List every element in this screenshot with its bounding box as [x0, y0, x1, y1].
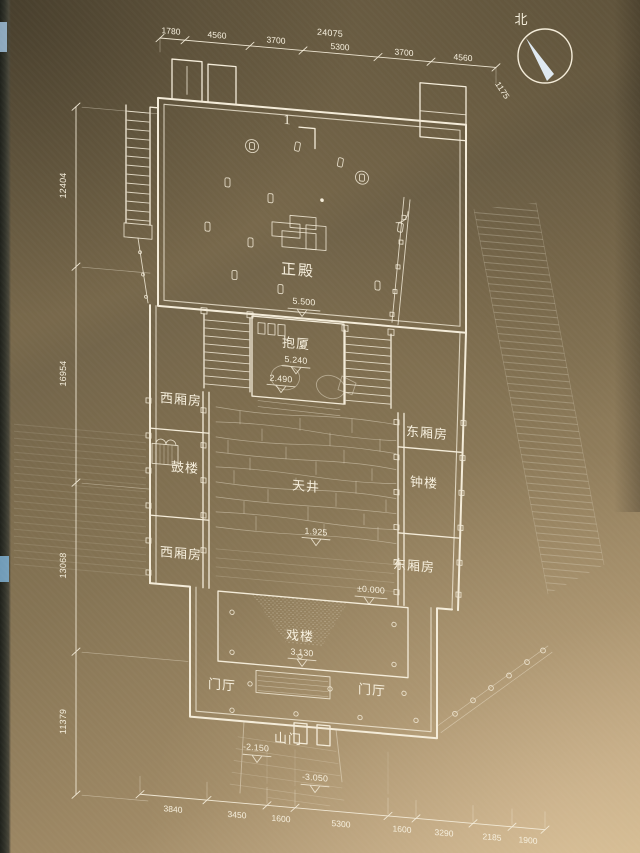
- mountain-gate: 山门 -2.150 -3.050: [230, 618, 552, 825]
- dim-left-2: 16954: [58, 360, 68, 387]
- room-label-entry-hall-west: 门厅: [208, 676, 236, 693]
- north-label: 北: [514, 12, 527, 27]
- dim-top-overall: 24075: [317, 27, 343, 39]
- level-marker-courtyard: 1.925: [302, 525, 330, 546]
- dim-top-seg5: 3700: [395, 47, 414, 59]
- dim-bottom-5: 1600: [393, 823, 412, 835]
- dim-top-seg3: 3700: [267, 34, 286, 46]
- interior-partition: [390, 196, 410, 326]
- room-label-mountain-gate: 山门: [274, 730, 302, 747]
- dim-bottom-7: 2185: [483, 831, 502, 843]
- dim-bottom-6: 3290: [435, 827, 454, 839]
- room-label-main-hall: 正殿: [281, 261, 315, 281]
- slope-hatch-east: [474, 197, 604, 598]
- section-marker: 1: [283, 113, 315, 149]
- dim-top-seg6: 4560: [454, 52, 473, 64]
- level-courtyard: 1.925: [305, 526, 328, 538]
- room-label-west-wing-lower: 西厢房: [160, 544, 202, 563]
- dim-bottom-4: 5300: [332, 818, 351, 830]
- room-label-west-wing-upper: 西厢房: [160, 390, 202, 409]
- level-marker-main-hall: 5.500: [288, 295, 320, 318]
- dim-top-right-end: 1175: [493, 80, 512, 101]
- plan-linework: 1780 4560 3700 24075 5300 3700 4560 1175…: [14, 0, 604, 852]
- stair-west: [201, 308, 253, 393]
- courtyard-paving: [216, 407, 396, 544]
- floorplan-drawing: 1780 4560 3700 24075 5300 3700 4560 1175…: [0, 0, 640, 853]
- compass-needle-icon: [526, 38, 554, 81]
- stair-east: [342, 325, 394, 409]
- room-label-east-wing-upper: 东厢房: [406, 424, 448, 443]
- dim-left-4: 11379: [58, 708, 68, 734]
- central-steps: [256, 670, 330, 698]
- level-marker-baoxia-upper: 5.240: [282, 354, 310, 375]
- dim-left-1: 12404: [58, 172, 68, 199]
- level-gate-lower: -3.050: [302, 771, 328, 783]
- room-label-stage: 戏楼: [286, 627, 314, 644]
- slope-hatch-west: [14, 421, 146, 581]
- room-label-bell-tower: 钟楼: [410, 474, 438, 491]
- room-label-drum-tower: 鼓楼: [171, 459, 199, 476]
- dim-bottom-8: 1900: [519, 834, 538, 846]
- book-page-photo: 1780 4560 3700 24075 5300 3700 4560 1175…: [0, 0, 640, 853]
- room-label-east-wing-lower: 东厢房: [393, 556, 435, 575]
- bottom-dimension-line: 3840 3450 1600 5300 1600 3290 2185 1900: [136, 730, 549, 847]
- level-main-hall: 5.500: [293, 296, 316, 308]
- dim-top-seg4: 5300: [331, 41, 350, 53]
- room-label-baoxia: 抱厦: [282, 335, 310, 352]
- level-baoxia-upper: 5.240: [285, 354, 308, 366]
- boundary-path-east: [437, 636, 552, 742]
- top-dimension-line: 1780 4560 3700 24075 5300 3700 4560 1175: [156, 13, 512, 102]
- dim-bottom-2: 3450: [228, 809, 247, 821]
- room-label-courtyard: 天井: [292, 478, 320, 495]
- dim-top-seg1: 1780: [162, 25, 181, 37]
- room-label-entry-hall-east: 门厅: [358, 681, 386, 698]
- dim-left-3: 13068: [58, 552, 68, 579]
- level-datum: ±0.000: [357, 583, 385, 595]
- dim-top-seg2: 4560: [208, 29, 227, 41]
- north-compass: 北: [514, 12, 572, 83]
- dim-bottom-3: 1600: [272, 813, 291, 825]
- level-marker-datum: ±0.000: [355, 583, 387, 606]
- exterior-staircase-west: [124, 105, 158, 304]
- main-hall: 正殿 5.500: [124, 55, 466, 333]
- dim-bottom-1: 3840: [164, 803, 183, 815]
- altar: [272, 214, 326, 251]
- stage-theater: ±0.000 戏楼 3.130 门厅 门厅: [150, 565, 452, 739]
